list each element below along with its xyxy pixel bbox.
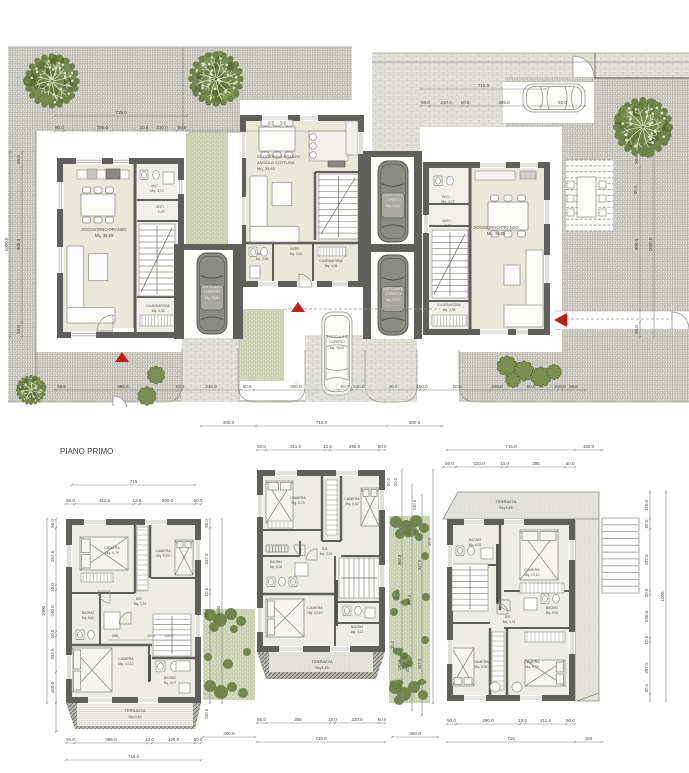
svg-text:Mq. 3,72: Mq. 3,72 (150, 189, 163, 193)
svg-text:13.5: 13.5 (323, 444, 332, 449)
svg-text:SOGGIORNO-PRANZO: SOGGIORNO-PRANZO (257, 154, 300, 159)
svg-text:SOGGIORNO-PRANZO: SOGGIORNO-PRANZO (473, 225, 519, 230)
svg-text:385.0: 385.0 (105, 737, 117, 742)
svg-text:BAGNO: BAGNO (546, 606, 559, 610)
svg-text:220.0: 220.0 (473, 461, 485, 466)
svg-text:210.0: 210.0 (205, 384, 217, 389)
svg-text:715.0: 715.0 (315, 736, 327, 741)
svg-text:ANTI: ANTI (156, 205, 164, 209)
svg-text:150.0: 150.0 (416, 384, 428, 389)
svg-text:150.0: 150.0 (50, 681, 55, 693)
svg-text:50.0: 50.0 (527, 384, 536, 389)
svg-text:50.0: 50.0 (566, 461, 575, 466)
svg-text:Mq. 4,38: Mq. 4,38 (443, 308, 456, 312)
svg-text:1000: 1000 (660, 591, 665, 602)
svg-text:347.5: 347.5 (204, 553, 209, 565)
svg-text:BAGNO: BAGNO (270, 560, 283, 564)
svg-text:50.0: 50.0 (16, 155, 21, 164)
svg-text:220.0: 220.0 (168, 737, 180, 742)
svg-text:Mq. 9,79: Mq. 9,79 (291, 501, 304, 505)
svg-text:50.0: 50.0 (66, 498, 75, 503)
svg-text:50.0: 50.0 (378, 444, 387, 449)
svg-text:10.0: 10.0 (145, 737, 154, 742)
svg-text:Mq. 35,55: Mq. 35,55 (487, 231, 506, 236)
svg-text:Mq. 35,55: Mq. 35,55 (95, 233, 114, 238)
svg-text:DIS.: DIS. (322, 547, 329, 551)
svg-text:1000.0: 1000.0 (648, 237, 653, 251)
svg-text:210.0: 210.0 (554, 384, 566, 389)
svg-text:13.5: 13.5 (518, 718, 527, 723)
svg-text:150.0: 150.0 (644, 499, 649, 511)
svg-text:CAMERA: CAMERA (290, 496, 306, 500)
svg-text:715.0: 715.0 (316, 420, 328, 425)
svg-text:Mq.8,49: Mq.8,49 (316, 666, 329, 670)
svg-text:Mq. 14,10: Mq. 14,10 (118, 662, 133, 666)
svg-text:50.0: 50.0 (558, 100, 567, 105)
svg-text:50.0: 50.0 (566, 718, 575, 723)
svg-text:BAGNO: BAGNO (469, 538, 482, 542)
svg-text:240.0: 240.0 (50, 605, 55, 617)
svg-text:150: 150 (585, 736, 593, 741)
svg-text:CAMERA: CAMERA (473, 660, 489, 664)
svg-text:50.0: 50.0 (569, 384, 578, 389)
svg-text:PIANO PRIMO: PIANO PRIMO (60, 447, 113, 456)
svg-text:GUARDAROBA: GUARDAROBA (319, 259, 343, 263)
svg-text:CAMERA: CAMERA (524, 660, 540, 664)
svg-text:30.0: 30.0 (390, 640, 395, 649)
svg-text:CAMERA: CAMERA (307, 606, 323, 610)
svg-text:297.5: 297.5 (644, 662, 649, 674)
svg-text:220.0: 220.0 (165, 634, 174, 638)
svg-text:347.5: 347.5 (417, 559, 422, 570)
svg-text:50.0: 50.0 (55, 125, 64, 130)
svg-text:311.5: 311.5 (99, 498, 110, 503)
svg-text:Mq. 8,00: Mq. 8,00 (82, 616, 95, 620)
svg-text:585: 585 (112, 634, 118, 638)
svg-text:ANTI: ANTI (442, 219, 450, 223)
svg-text:10.0: 10.0 (148, 634, 155, 638)
svg-text:Mq. 4,07: Mq. 4,07 (164, 681, 177, 685)
svg-text:900.0: 900.0 (16, 238, 21, 250)
svg-text:290.0: 290.0 (349, 444, 361, 449)
svg-text:340.0: 340.0 (407, 594, 412, 605)
svg-text:Mq. 9,52: Mq. 9,52 (156, 554, 169, 558)
svg-text:50.0: 50.0 (633, 185, 638, 194)
svg-text:POSTO AUTO: POSTO AUTO (327, 335, 348, 339)
svg-text:Mq. 5,00: Mq. 5,00 (546, 611, 559, 615)
svg-text:290.0: 290.0 (482, 718, 494, 723)
svg-text:10.0: 10.0 (204, 587, 209, 596)
svg-text:150.0: 150.0 (583, 444, 595, 449)
svg-text:Mq. 15,00: Mq. 15,00 (330, 346, 344, 350)
svg-text:Mq. 14,10: Mq. 14,10 (307, 611, 322, 615)
svg-text:210.0: 210.0 (440, 100, 452, 105)
svg-text:10.0: 10.0 (427, 537, 432, 546)
svg-text:Mq. 15,00: Mq. 15,00 (386, 204, 400, 208)
svg-text:CAMERA: CAMERA (524, 568, 540, 572)
svg-text:332.5: 332.5 (644, 554, 649, 566)
svg-text:Mq. 4,01: Mq. 4,01 (351, 630, 364, 634)
svg-text:220.0: 220.0 (351, 717, 363, 722)
svg-text:TERRAZZA: TERRAZZA (311, 659, 332, 664)
svg-text:50.0: 50.0 (257, 444, 266, 449)
svg-text:50.0: 50.0 (66, 737, 75, 742)
svg-text:CAMERA: CAMERA (118, 657, 134, 661)
svg-text:50.0: 50.0 (644, 519, 649, 528)
svg-text:715: 715 (130, 479, 138, 484)
svg-text:CAMERA: CAMERA (344, 497, 360, 501)
svg-text:10.0: 10.0 (176, 384, 185, 389)
svg-text:Mq. 4,01: Mq. 4,01 (469, 543, 482, 547)
svg-text:20.0: 20.0 (393, 477, 398, 486)
svg-text:Mq. 9,52: Mq. 9,52 (474, 665, 487, 669)
svg-text:20.0: 20.0 (405, 663, 410, 672)
svg-text:Mq. 33,63: Mq. 33,63 (257, 166, 276, 171)
svg-text:715.0: 715.0 (115, 110, 127, 115)
svg-text:SOGGIORNO-PRANZO: SOGGIORNO-PRANZO (81, 227, 127, 232)
svg-text:150.0: 150.0 (204, 708, 209, 719)
svg-text:ANGOLO COTTURA: ANGOLO COTTURA (257, 160, 295, 165)
svg-text:347.5: 347.5 (417, 658, 422, 669)
svg-text:Mq. 15,00: Mq. 15,00 (205, 296, 219, 300)
svg-text:50.0: 50.0 (16, 325, 21, 334)
svg-text:BAGNO: BAGNO (82, 611, 95, 615)
svg-text:Mq.9,49: Mq.9,49 (500, 506, 513, 510)
svg-text:395.0: 395.0 (498, 100, 510, 105)
svg-text:10.0: 10.0 (50, 583, 55, 592)
svg-text:Mq. 14,10: Mq. 14,10 (524, 573, 539, 577)
svg-text:TERRAZZA: TERRAZZA (495, 499, 516, 504)
svg-text:Mq. 3,24: Mq. 3,24 (320, 552, 333, 556)
svg-text:1000.0: 1000.0 (4, 237, 9, 251)
svg-text:Mq. 3,24: Mq. 3,24 (503, 620, 516, 624)
svg-text:COPERTO: COPERTO (385, 198, 401, 202)
svg-text:311.5: 311.5 (540, 718, 551, 723)
svg-text:715: 715 (507, 736, 515, 741)
svg-text:POSTO AUTO: POSTO AUTO (202, 285, 223, 289)
svg-text:300.0: 300.0 (409, 731, 421, 736)
svg-text:Mq. 9,79: Mq. 9,79 (525, 665, 538, 669)
svg-text:50.0: 50.0 (178, 125, 187, 130)
svg-text:Mq. 3,24: Mq. 3,24 (134, 602, 147, 606)
svg-text:POSTO AUTO: POSTO AUTO (383, 193, 404, 197)
svg-text:Mq. 9,79: Mq. 9,79 (105, 551, 118, 555)
svg-text:20.0: 20.0 (644, 588, 649, 597)
svg-text:50.0: 50.0 (644, 683, 649, 692)
svg-text:900.0: 900.0 (634, 238, 639, 250)
svg-text:INGR.: INGR. (290, 247, 299, 251)
svg-text:50.0: 50.0 (204, 519, 209, 528)
svg-text:210.0: 210.0 (156, 125, 168, 130)
svg-text:290.0: 290.0 (162, 498, 174, 503)
svg-text:50.0: 50.0 (634, 325, 639, 334)
svg-text:50.0: 50.0 (421, 100, 430, 105)
svg-text:10.0: 10.0 (644, 635, 649, 644)
svg-text:YouMove: YouMove (290, 370, 408, 407)
svg-text:311.5: 311.5 (290, 444, 301, 449)
svg-text:150.0: 150.0 (412, 499, 417, 510)
svg-text:20.0: 20.0 (50, 629, 55, 638)
svg-text:GUARDAROBA: GUARDAROBA (146, 304, 170, 308)
svg-text:50.0: 50.0 (50, 519, 55, 528)
svg-text:COPERTO: COPERTO (329, 340, 345, 344)
svg-text:49.5: 49.5 (57, 384, 66, 389)
svg-text:10.0: 10.0 (461, 100, 470, 105)
svg-text:CAMERA: CAMERA (104, 546, 120, 550)
svg-text:Mq. 3,94: Mq. 3,94 (256, 257, 269, 261)
svg-text:385: 385 (294, 717, 302, 722)
svg-text:300.0: 300.0 (409, 420, 421, 425)
svg-text:395.5: 395.5 (117, 384, 129, 389)
svg-text:1000: 1000 (41, 605, 46, 616)
svg-text:COPERTO: COPERTO (204, 290, 220, 294)
svg-text:1000: 1000 (216, 605, 221, 616)
svg-text:332.5: 332.5 (50, 648, 55, 660)
svg-text:960.0: 960.0 (397, 554, 402, 565)
svg-text:W.C.: W.C. (151, 184, 159, 188)
svg-text:20.0: 20.0 (204, 608, 209, 617)
svg-text:50.0: 50.0 (386, 477, 391, 486)
svg-text:Mq. 4,38: Mq. 4,38 (325, 264, 338, 268)
svg-text:Mq. 4,38: Mq. 4,38 (152, 309, 165, 313)
svg-text:Mq. 15,00: Mq. 15,00 (386, 298, 400, 302)
svg-text:10.0: 10.0 (140, 125, 149, 130)
svg-text:13.5: 13.5 (133, 498, 142, 503)
svg-text:395.0: 395.0 (97, 125, 109, 130)
svg-text:POSTO AUTO: POSTO AUTO (383, 287, 404, 291)
svg-text:150.0: 150.0 (397, 659, 402, 670)
svg-text:300.0: 300.0 (223, 731, 235, 736)
svg-text:DIS.: DIS. (505, 615, 512, 619)
svg-text:2,10: 2,10 (158, 210, 165, 214)
svg-text:TERRAZZA: TERRAZZA (124, 708, 145, 713)
svg-text:240.0: 240.0 (644, 610, 649, 622)
svg-text:10.0: 10.0 (328, 717, 337, 722)
svg-text:2,10: 2,10 (445, 224, 452, 228)
svg-text:10.0: 10.0 (453, 384, 462, 389)
svg-text:50.0: 50.0 (445, 461, 454, 466)
svg-text:CAMERA: CAMERA (155, 549, 171, 553)
svg-text:10.0: 10.0 (500, 461, 509, 466)
svg-text:GUARDAROBA: GUARDAROBA (437, 303, 461, 307)
svg-text:Mq. 3,03: Mq. 3,03 (290, 252, 303, 256)
svg-text:BAGNO: BAGNO (351, 625, 364, 629)
svg-text:Mq. 9,52: Mq. 9,52 (345, 502, 358, 506)
svg-text:50.0: 50.0 (257, 717, 266, 722)
svg-text:Mq. 8,00: Mq. 8,00 (270, 565, 283, 569)
svg-text:715.0: 715.0 (505, 444, 517, 449)
svg-text:W.C.: W.C. (442, 195, 450, 199)
svg-text:240.0: 240.0 (491, 384, 503, 389)
svg-text:Mq.9,49: Mq.9,49 (129, 715, 142, 719)
svg-text:50.0: 50.0 (194, 737, 203, 742)
svg-text:Mq. 3,72: Mq. 3,72 (441, 200, 454, 204)
svg-text:715.0: 715.0 (128, 754, 140, 759)
svg-text:50.0: 50.0 (378, 717, 387, 722)
svg-text:50.0: 50.0 (243, 384, 252, 389)
svg-text:715.0: 715.0 (478, 83, 490, 88)
svg-text:297.5: 297.5 (50, 550, 55, 562)
svg-text:50.0: 50.0 (194, 498, 203, 503)
svg-text:50.0: 50.0 (634, 155, 639, 164)
svg-text:385: 385 (532, 461, 540, 466)
svg-text:COPERTO: COPERTO (385, 292, 401, 296)
svg-text:50.0: 50.0 (447, 718, 456, 723)
svg-text:BAGNO: BAGNO (164, 676, 177, 680)
svg-text:DIS.: DIS. (136, 597, 143, 601)
svg-text:300.0: 300.0 (223, 420, 235, 425)
